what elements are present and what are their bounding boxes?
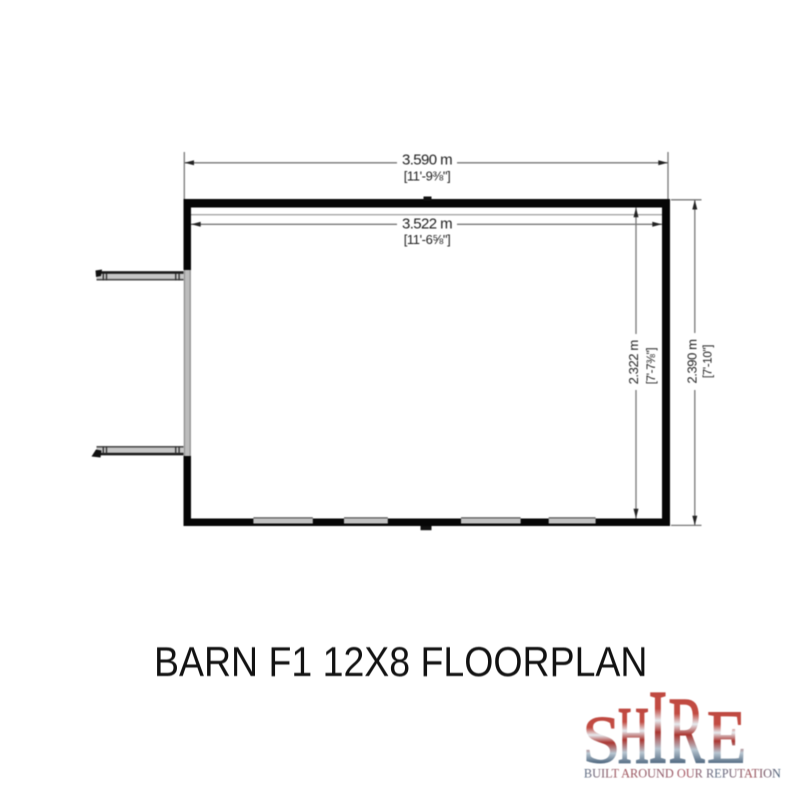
svg-text:3.522 m: 3.522 m xyxy=(402,216,452,233)
svg-text:2.390 m: 2.390 m xyxy=(684,339,699,383)
svg-text:[7'-7⅜"]: [7'-7⅜"] xyxy=(646,348,658,385)
svg-text:3.590 m: 3.590 m xyxy=(402,152,452,169)
svg-text:[11'-9⅜"]: [11'-9⅜"] xyxy=(404,169,451,184)
svg-text:[7'-10"]: [7'-10"] xyxy=(703,345,715,378)
svg-text:BUILT AROUND OUR REPUTATION: BUILT AROUND OUR REPUTATION xyxy=(584,766,781,780)
svg-text:[11'-6⅝"]: [11'-6⅝"] xyxy=(404,232,451,247)
svg-text:2.322 m: 2.322 m xyxy=(626,340,641,384)
